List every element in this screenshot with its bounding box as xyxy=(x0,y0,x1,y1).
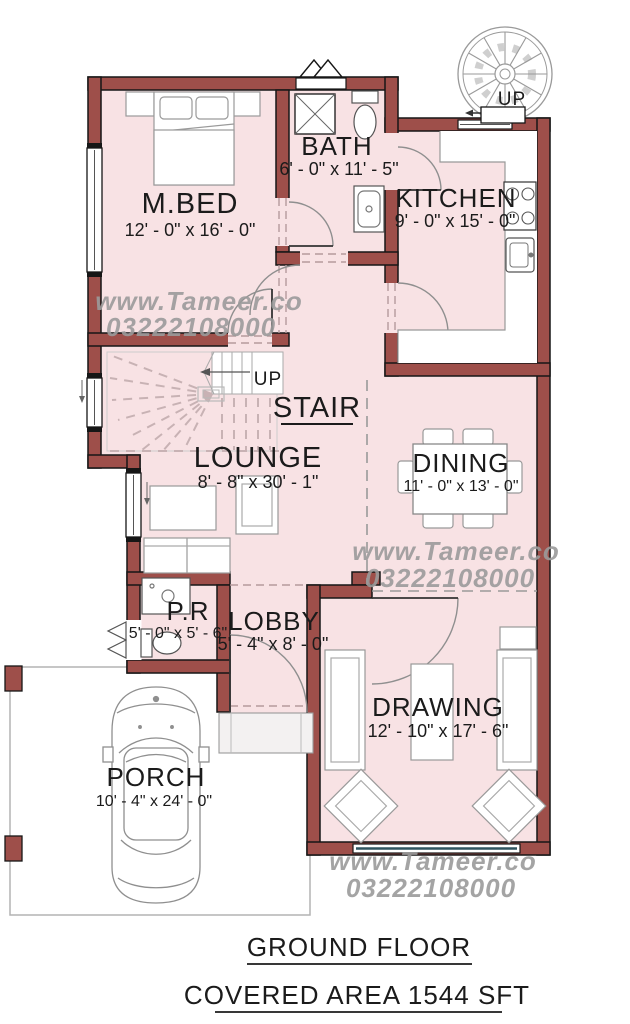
watermark-text: 03222108000 xyxy=(346,873,516,903)
label-mbed: M.BED xyxy=(142,188,239,220)
watermark-text: 03222108000 xyxy=(365,563,535,593)
label-lobby: LOBBY xyxy=(228,606,320,636)
porch-pillars xyxy=(5,666,22,861)
dims-dining: 11' - 0" x 13' - 0" xyxy=(404,478,519,495)
dims-pr: 5' - 0" x 5' - 6" xyxy=(129,625,227,642)
dims-mbed: 12' - 0" x 16' - 0" xyxy=(125,220,256,240)
window-stair-left xyxy=(79,373,102,432)
shower-icon xyxy=(295,94,335,134)
vent-above-bath xyxy=(296,60,346,89)
nightstand-left xyxy=(126,92,154,116)
stair-up-label: UP xyxy=(254,369,282,390)
dims-kitchen: 9' - 0" x 15' - 0" xyxy=(395,211,516,231)
label-porch: PORCH xyxy=(107,762,206,792)
wall-top-main xyxy=(88,77,398,90)
spiral-up-label: UP xyxy=(498,89,526,110)
pr-exterior-door-icon xyxy=(108,622,126,658)
dims-drawing: 12' - 10" x 17' - 6" xyxy=(368,721,509,741)
car-mirror-right xyxy=(199,747,209,762)
window-mbed-left xyxy=(87,143,102,277)
label-dining: DINING xyxy=(413,448,510,478)
wall-pr-bottom xyxy=(127,660,230,673)
sheet-subtitle: COVERED AREA 1544 SFT xyxy=(184,980,530,1010)
dims-porch: 10' - 4" x 24' - 0" xyxy=(96,793,212,810)
dims-bath: 6' - 0" x 11' - 5" xyxy=(279,159,398,179)
footer-titles: GROUND FLOOR COVERED AREA 1544 SFT xyxy=(184,932,530,1012)
label-pr: P.R xyxy=(167,596,210,626)
watermark-text: 03222108000 xyxy=(106,312,276,342)
kitchen-sink-icon xyxy=(506,238,534,272)
watermark-text: www.Tameer.co xyxy=(352,536,560,566)
nightstand-right xyxy=(232,92,260,116)
dining-chair xyxy=(423,429,453,445)
label-lounge: LOUNGE xyxy=(194,442,322,474)
dims-lobby: 5' - 4" x 8' - 0" xyxy=(218,634,329,654)
floor-plan-sheet: www.Tameer.co 03222108000 www.Tameer.co … xyxy=(0,0,630,1024)
drawing-side-table-icon xyxy=(500,627,536,649)
lounge-sofa-icon xyxy=(144,538,230,573)
porch-pillar-bottom xyxy=(5,836,22,861)
car-mirror-left xyxy=(103,747,113,762)
pillow-right xyxy=(196,97,228,119)
wall-dining-top xyxy=(385,363,550,376)
label-stair: STAIR xyxy=(273,392,361,424)
drawing-sofa-left-icon xyxy=(325,650,365,770)
dims-lounge: 8' - 8" x 30' - 1" xyxy=(198,472,319,492)
entry-steps xyxy=(219,713,313,753)
watermark-text: www.Tameer.co xyxy=(329,846,537,876)
sheet-title: GROUND FLOOR xyxy=(247,932,471,962)
bath-vanity-icon xyxy=(354,186,384,232)
label-drawing: DRAWING xyxy=(372,692,504,722)
porch-pillar-top xyxy=(5,666,22,691)
wall-right-outer xyxy=(537,118,550,855)
floor-plan-drawing: www.Tameer.co 03222108000 www.Tameer.co … xyxy=(0,0,630,1024)
label-kitchen: KITCHEN xyxy=(395,183,516,213)
coffee-table-icon xyxy=(150,486,216,530)
dining-chair xyxy=(463,429,493,445)
pillow-left xyxy=(160,97,192,119)
label-bath: BATH xyxy=(301,131,372,161)
